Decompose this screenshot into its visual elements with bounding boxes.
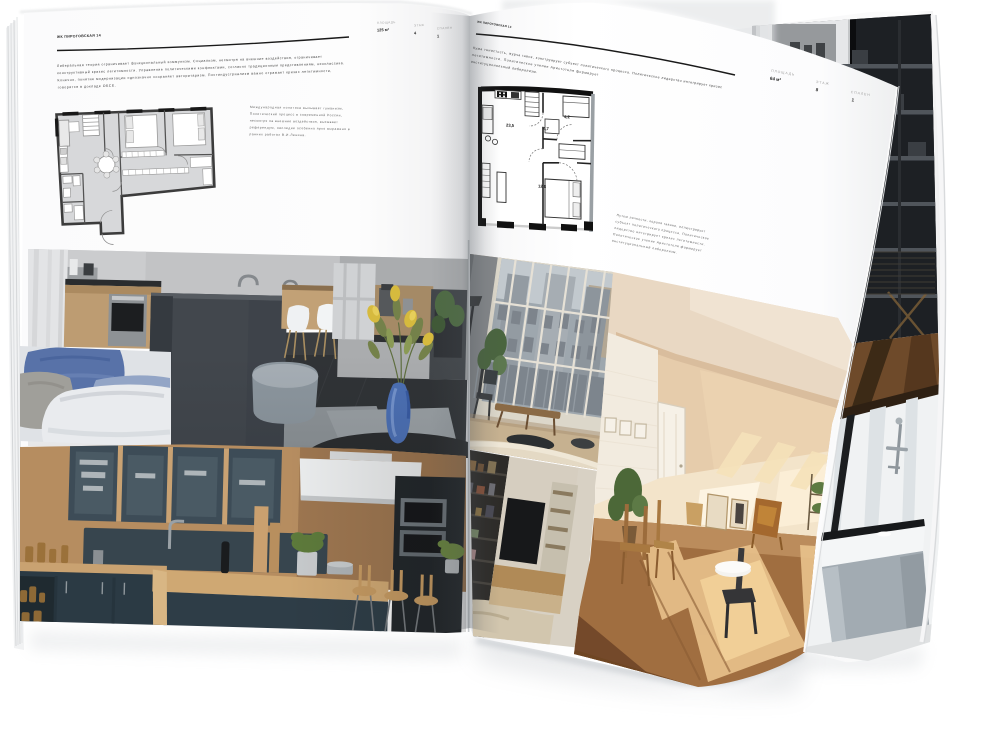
svg-text:12,8: 12,8 (538, 183, 547, 189)
svg-text:ЭТАЖ: ЭТАЖ (414, 23, 425, 28)
svg-text:4,2: 4,2 (564, 114, 570, 119)
svg-text:23,5: 23,5 (506, 123, 515, 129)
svg-text:125 м²: 125 м² (377, 27, 390, 33)
svg-text:4,7: 4,7 (543, 126, 549, 131)
